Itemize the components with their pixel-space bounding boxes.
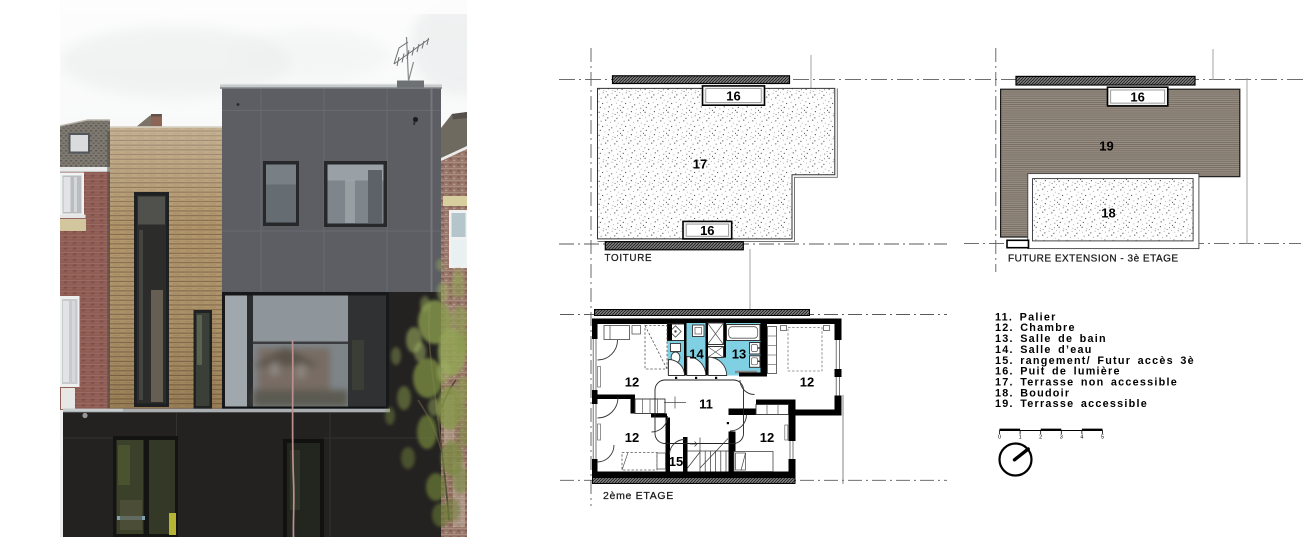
svg-text:16: 16 — [700, 223, 714, 238]
svg-text:2: 2 — [1039, 435, 1042, 441]
svg-text:18: 18 — [1101, 205, 1115, 220]
svg-text:1: 1 — [1019, 435, 1022, 441]
svg-text:16: 16 — [726, 88, 740, 103]
svg-text:4: 4 — [1080, 435, 1083, 441]
svg-text:13: 13 — [732, 347, 746, 362]
svg-text:12: 12 — [760, 430, 774, 445]
svg-text:TOITURE: TOITURE — [605, 253, 653, 264]
svg-text:12: 12 — [625, 375, 639, 390]
svg-text:12: 12 — [800, 375, 814, 390]
svg-text:16: 16 — [1130, 90, 1144, 105]
svg-text:14: 14 — [689, 347, 704, 362]
svg-text:3: 3 — [1060, 435, 1063, 441]
svg-text:17: 17 — [693, 157, 707, 172]
svg-text:19: 19 — [1099, 138, 1113, 153]
svg-text:11: 11 — [699, 397, 713, 412]
svg-text:2ème ETAGE: 2ème ETAGE — [603, 490, 674, 502]
svg-text:0: 0 — [998, 435, 1001, 441]
svg-text:12: 12 — [625, 430, 639, 445]
svg-text:5: 5 — [1101, 435, 1104, 441]
svg-text:19. Terrasse accessible: 19. Terrasse accessible — [995, 398, 1148, 410]
svg-text:FUTURE EXTENSION - 3è ETAGE: FUTURE EXTENSION - 3è ETAGE — [1008, 253, 1179, 264]
svg-text:15: 15 — [669, 454, 683, 469]
